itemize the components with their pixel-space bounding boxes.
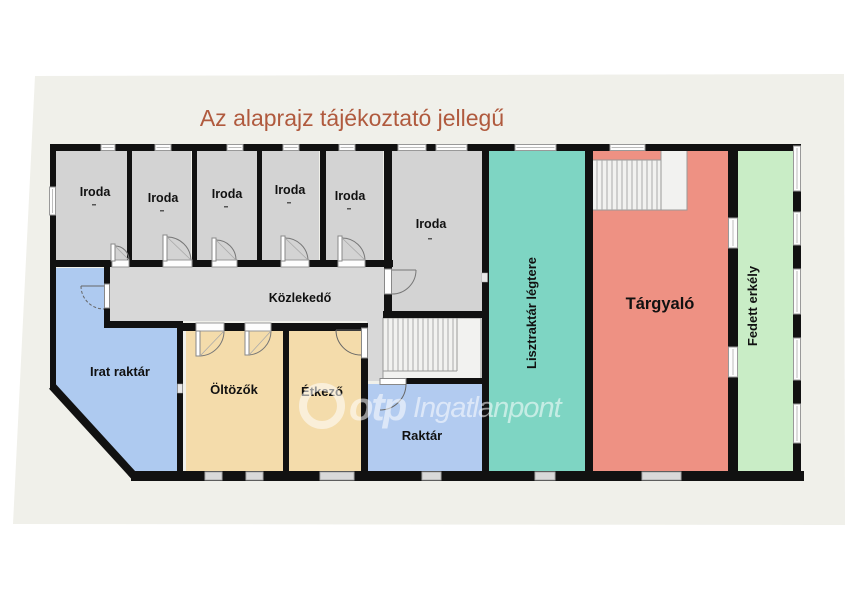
svg-text:Raktár: Raktár [402, 428, 442, 443]
svg-text:Iroda: Iroda [80, 185, 112, 199]
svg-text:Iroda: Iroda [335, 189, 367, 203]
svg-text:Az alaprajz tájékoztató jelleg: Az alaprajz tájékoztató jellegű [200, 105, 504, 131]
svg-text:Tárgyaló: Tárgyaló [626, 295, 695, 313]
svg-text:Iroda: Iroda [148, 191, 180, 205]
svg-text:Iroda: Iroda [416, 217, 448, 231]
svg-text:Iroda: Iroda [275, 183, 307, 197]
svg-text:Lisztraktár légtere: Lisztraktár légtere [524, 257, 539, 369]
svg-text:Iroda: Iroda [212, 187, 244, 201]
svg-text:Ingatlanpont: Ingatlanpont [413, 392, 564, 424]
svg-text:Közlekedő: Közlekedő [269, 291, 332, 305]
svg-text:Fedett erkély: Fedett erkély [745, 265, 760, 346]
svg-text:Irat raktár: Irat raktár [90, 364, 150, 379]
svg-text:otp: otp [349, 385, 407, 429]
svg-text:Öltözők: Öltözők [210, 382, 258, 397]
